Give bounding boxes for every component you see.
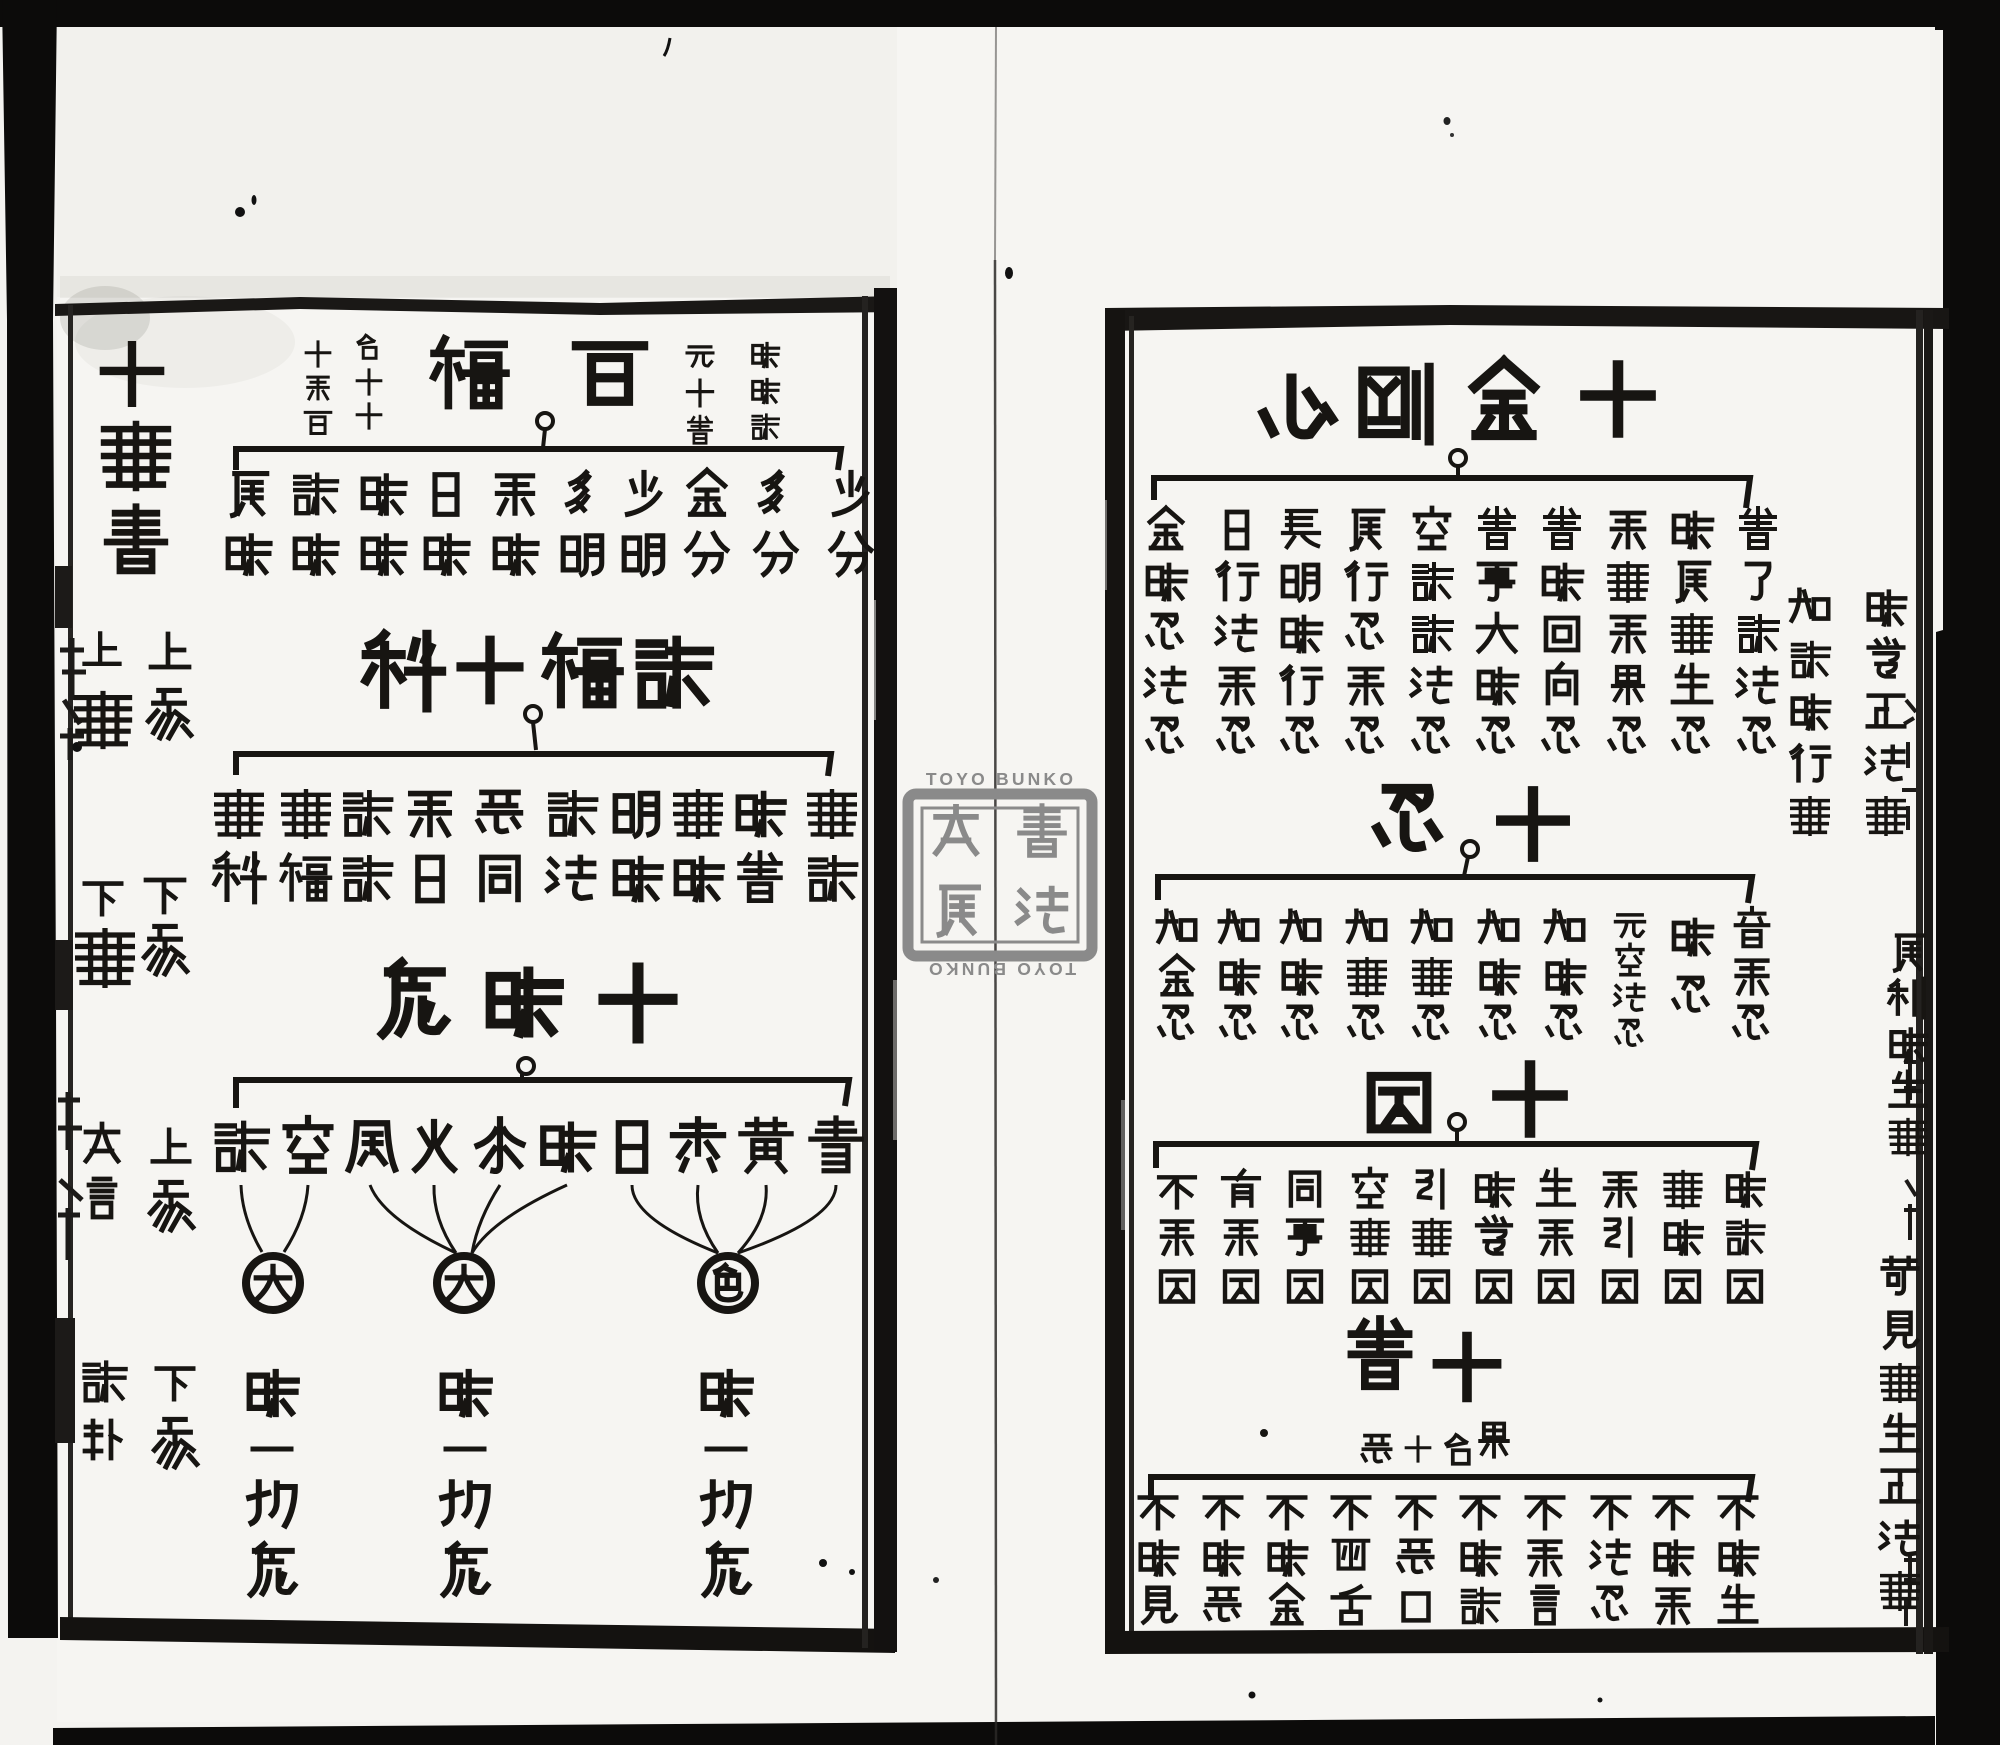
svg-text:TOYO BUNKO: TOYO BUNKO xyxy=(926,769,1076,789)
svg-text:TOYO BUNKO: TOYO BUNKO xyxy=(926,959,1076,979)
